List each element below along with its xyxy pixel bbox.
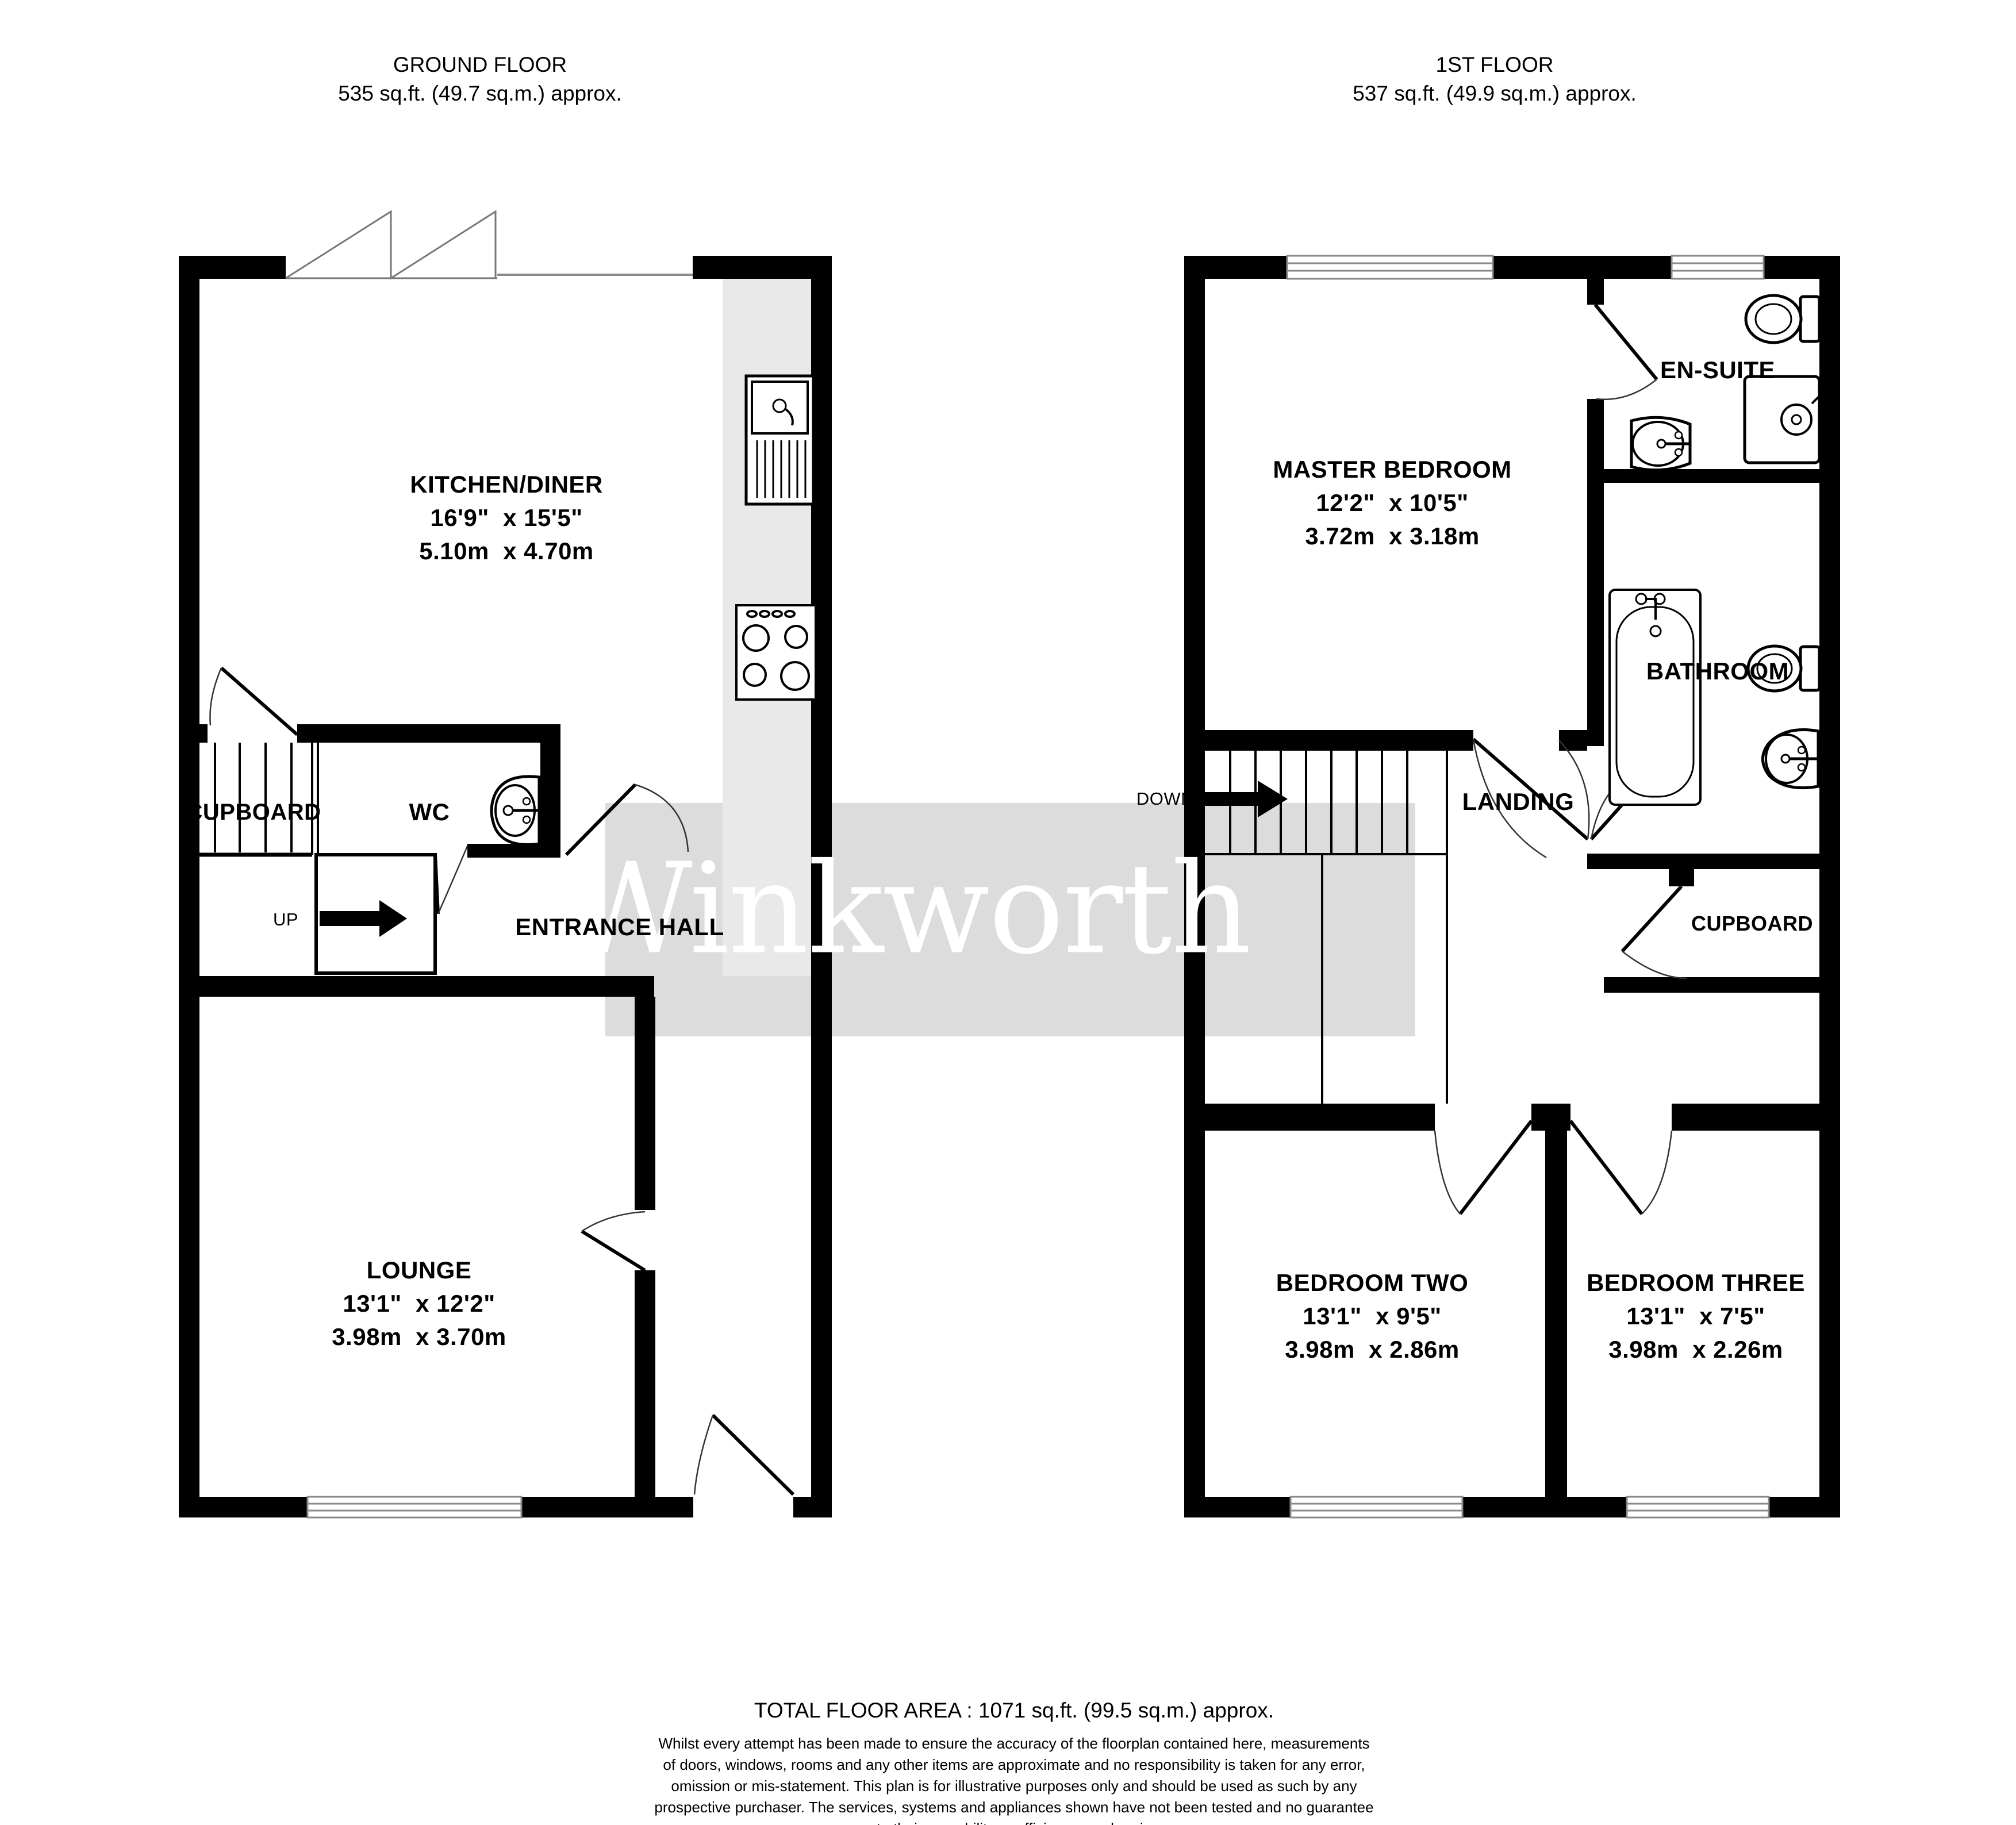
floorplan-page: Winkworth GROUND FLOOR 535 sq.ft. (49.7 …: [0, 0, 2016, 1825]
room-label-bedroom-two: BEDROOM TWO13'1" x 9'5"3.98m x 2.86m: [1276, 1200, 1468, 1433]
bathroom-sink-icon: [1763, 730, 1819, 788]
wc-sink-icon: [491, 777, 539, 845]
wc-door: [435, 846, 467, 914]
ensuite-door: [1595, 305, 1657, 399]
up-label: UP: [273, 903, 298, 936]
ensuite-toilet-icon: [1746, 295, 1819, 343]
room-label-bathroom: BATHROOM: [1646, 655, 1789, 688]
total-floor-area: TOTAL FLOOR AREA : 1071 sq.ft. (99.5 sq.…: [754, 1699, 1274, 1723]
kitchen-sink-icon: [746, 376, 813, 504]
front-door: [694, 1415, 793, 1494]
cupboard-door: [1622, 886, 1687, 978]
bifold-doors-icon: [286, 212, 497, 278]
bath-icon: [1610, 590, 1700, 805]
room-label-lounge: LOUNGE13'1" x 12'2"3.98m x 3.70m: [332, 1187, 506, 1420]
room-label-landing: LANDING: [1462, 785, 1575, 819]
room-label-kitchen: KITCHEN/DINER16'9" x 15'5"5.10m x 4.70m: [410, 401, 603, 635]
room-label-cupboard-ground: CUPBOARD: [186, 796, 321, 829]
ensuite-sink-icon: [1631, 417, 1690, 470]
lounge-door: [582, 1212, 645, 1270]
room-label-master-bedroom: MASTER BEDROOM12'2" x 10'5"3.72m x 3.18m: [1273, 386, 1511, 620]
room-label-bedroom-three: BEDROOM THREE13'1" x 7'5"3.98m x 2.26m: [1587, 1200, 1805, 1433]
room-label-wc: WC: [409, 796, 450, 829]
room-label-entrance-hall: ENTRANCE HALL: [515, 910, 724, 944]
kitchen-divider-wall: [199, 724, 560, 743]
kitchen-door: [210, 668, 297, 735]
ground-floor-header: GROUND FLOOR 535 sq.ft. (49.7 sq.m.) app…: [338, 51, 622, 108]
winkworth-watermark: Winkworth: [564, 837, 1251, 982]
disclaimer-text: Whilst every attempt has been made to en…: [654, 1733, 1373, 1825]
down-label: DOWN: [1136, 782, 1194, 816]
room-label-ensuite: EN-SUITE: [1660, 354, 1775, 387]
lounge-window: [308, 1497, 521, 1517]
first-floor-header: 1ST FLOOR 537 sq.ft. (49.9 sq.m.) approx…: [1353, 51, 1637, 108]
hob-icon: [736, 605, 816, 700]
shower-icon: [1745, 376, 1819, 463]
room-label-cupboard-first: CUPBOARD: [1691, 907, 1813, 940]
